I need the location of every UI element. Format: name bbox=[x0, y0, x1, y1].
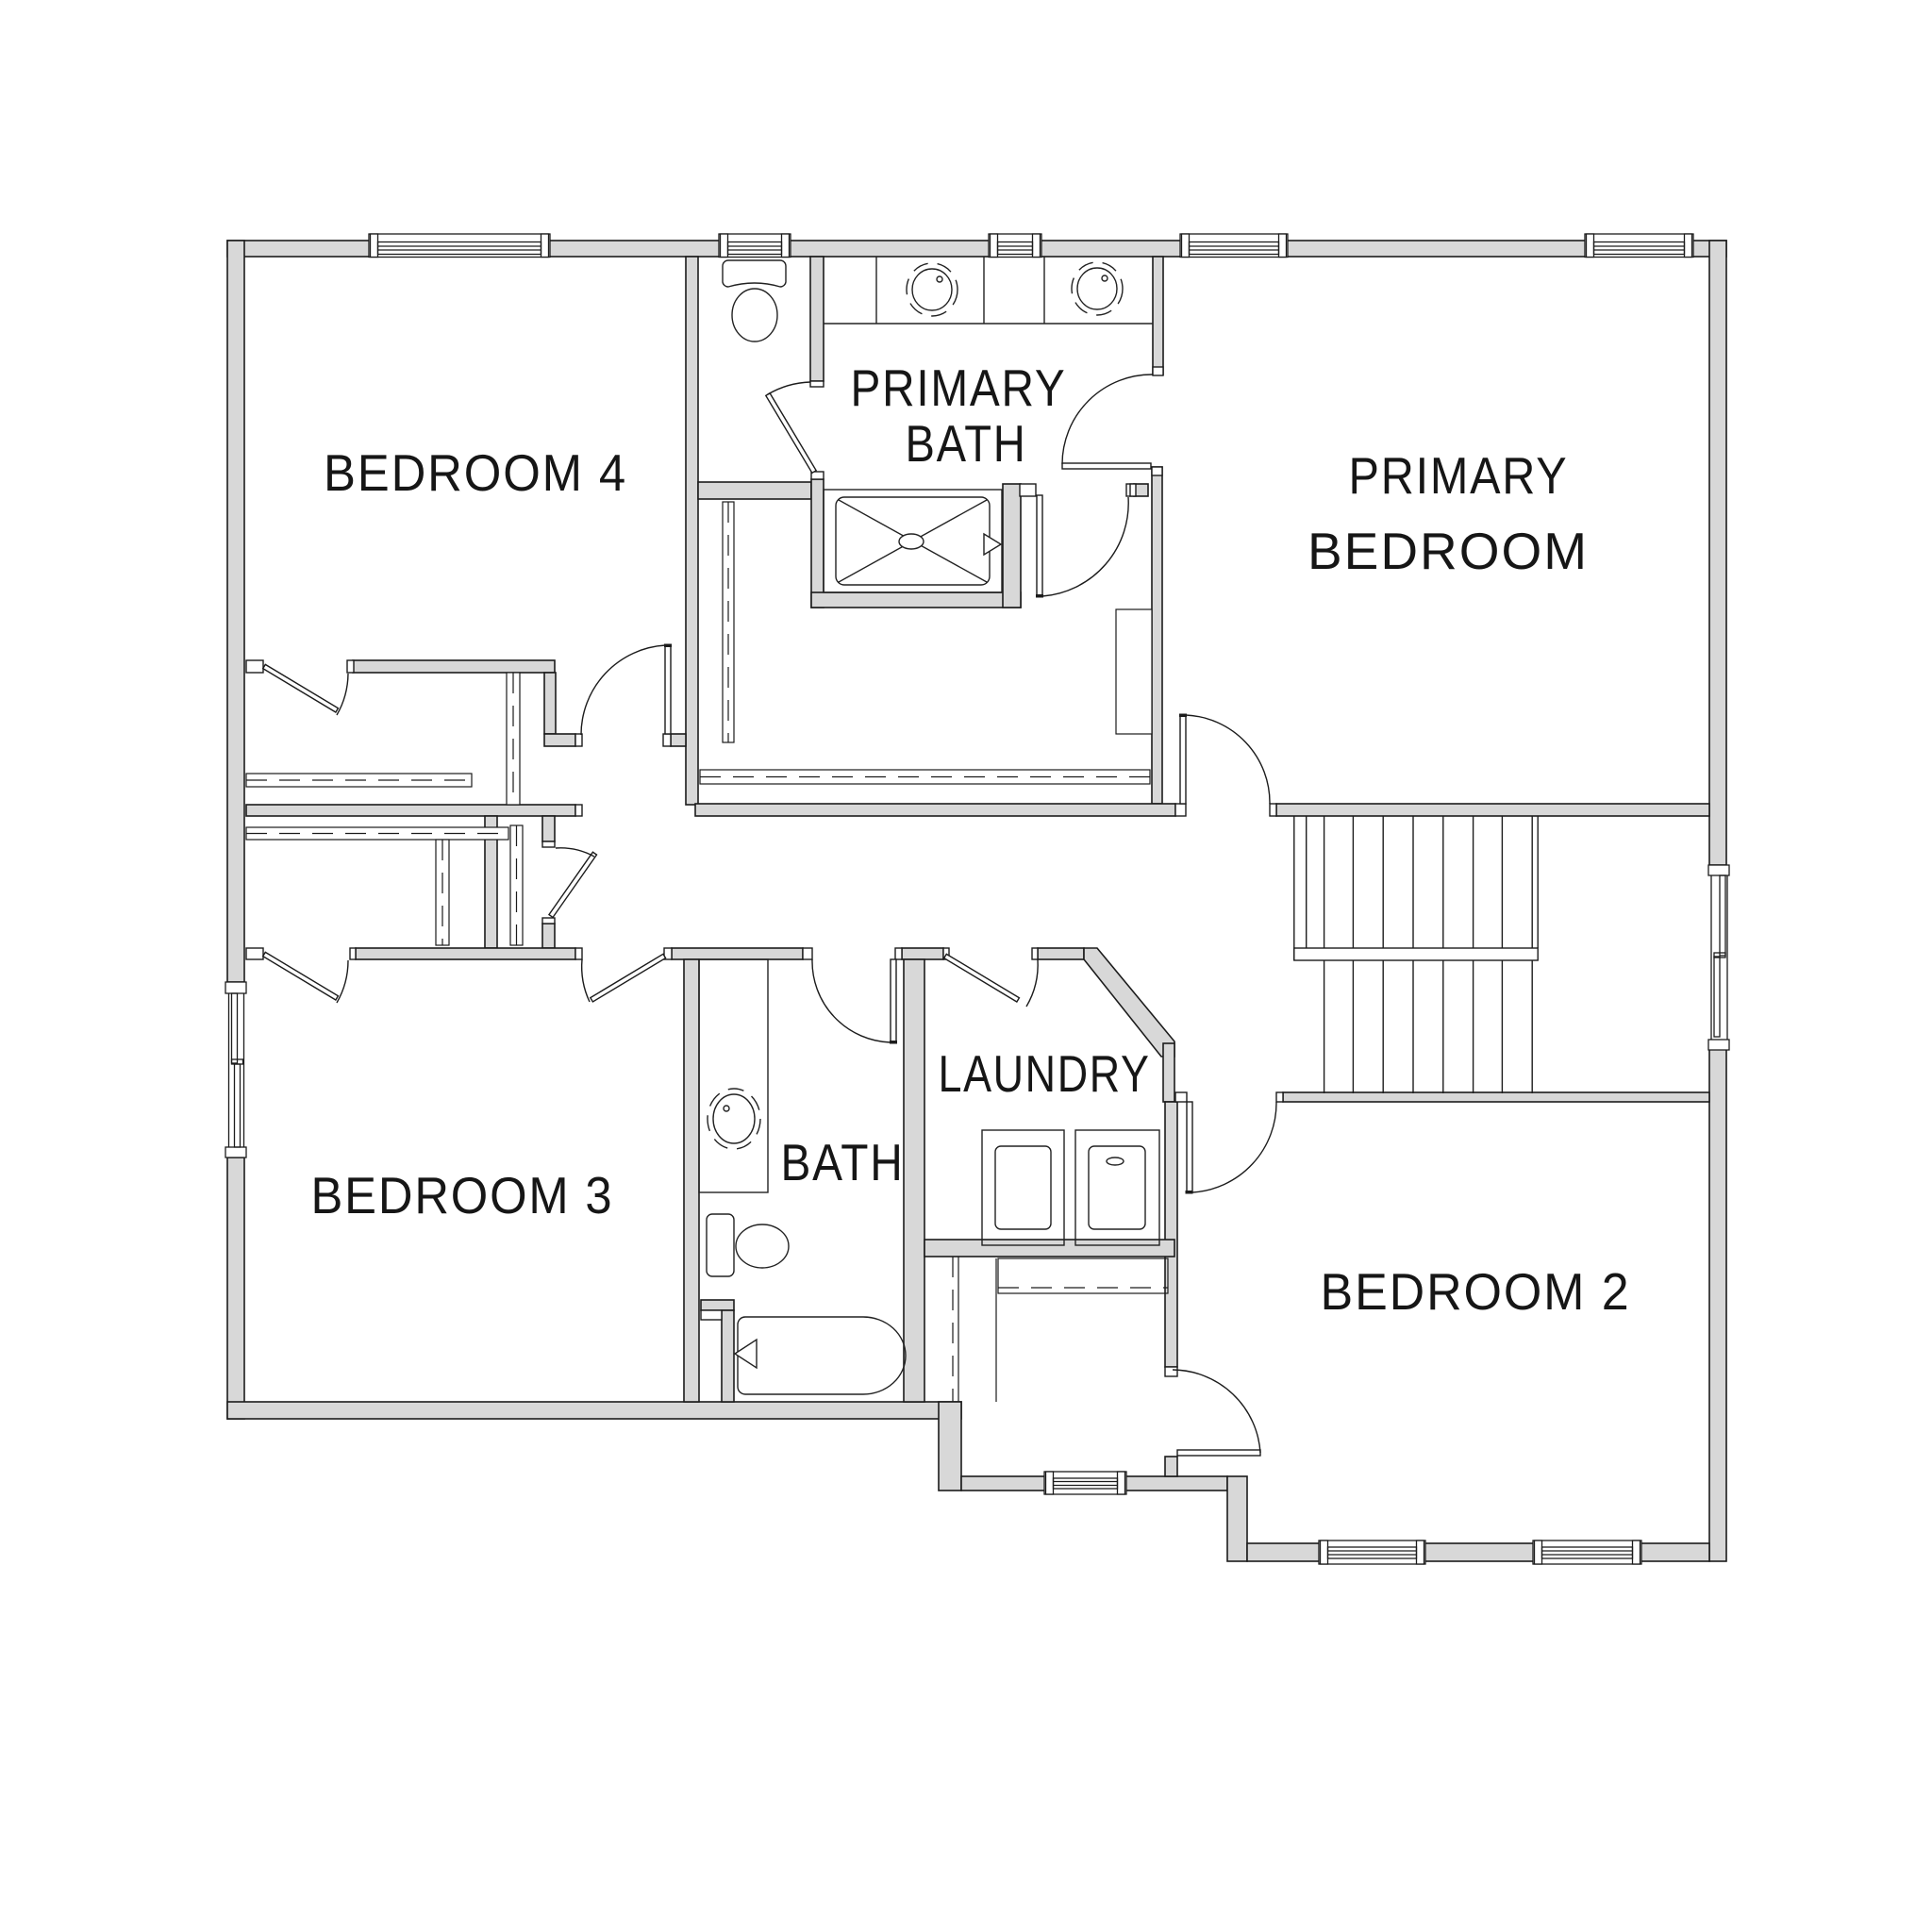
svg-text:BATH: BATH bbox=[906, 414, 1027, 473]
svg-text:PRIMARY: PRIMARY bbox=[851, 358, 1067, 417]
svg-text:BEDROOM 2: BEDROOM 2 bbox=[1321, 1262, 1631, 1321]
svg-text:LAUNDRY: LAUNDRY bbox=[939, 1044, 1151, 1103]
svg-text:PRIMARY: PRIMARY bbox=[1349, 446, 1569, 505]
svg-text:BATH: BATH bbox=[781, 1133, 905, 1191]
svg-text:BEDROOM: BEDROOM bbox=[1307, 522, 1589, 580]
svg-text:BEDROOM 3: BEDROOM 3 bbox=[311, 1166, 614, 1224]
svg-text:BEDROOM 4: BEDROOM 4 bbox=[324, 443, 627, 502]
